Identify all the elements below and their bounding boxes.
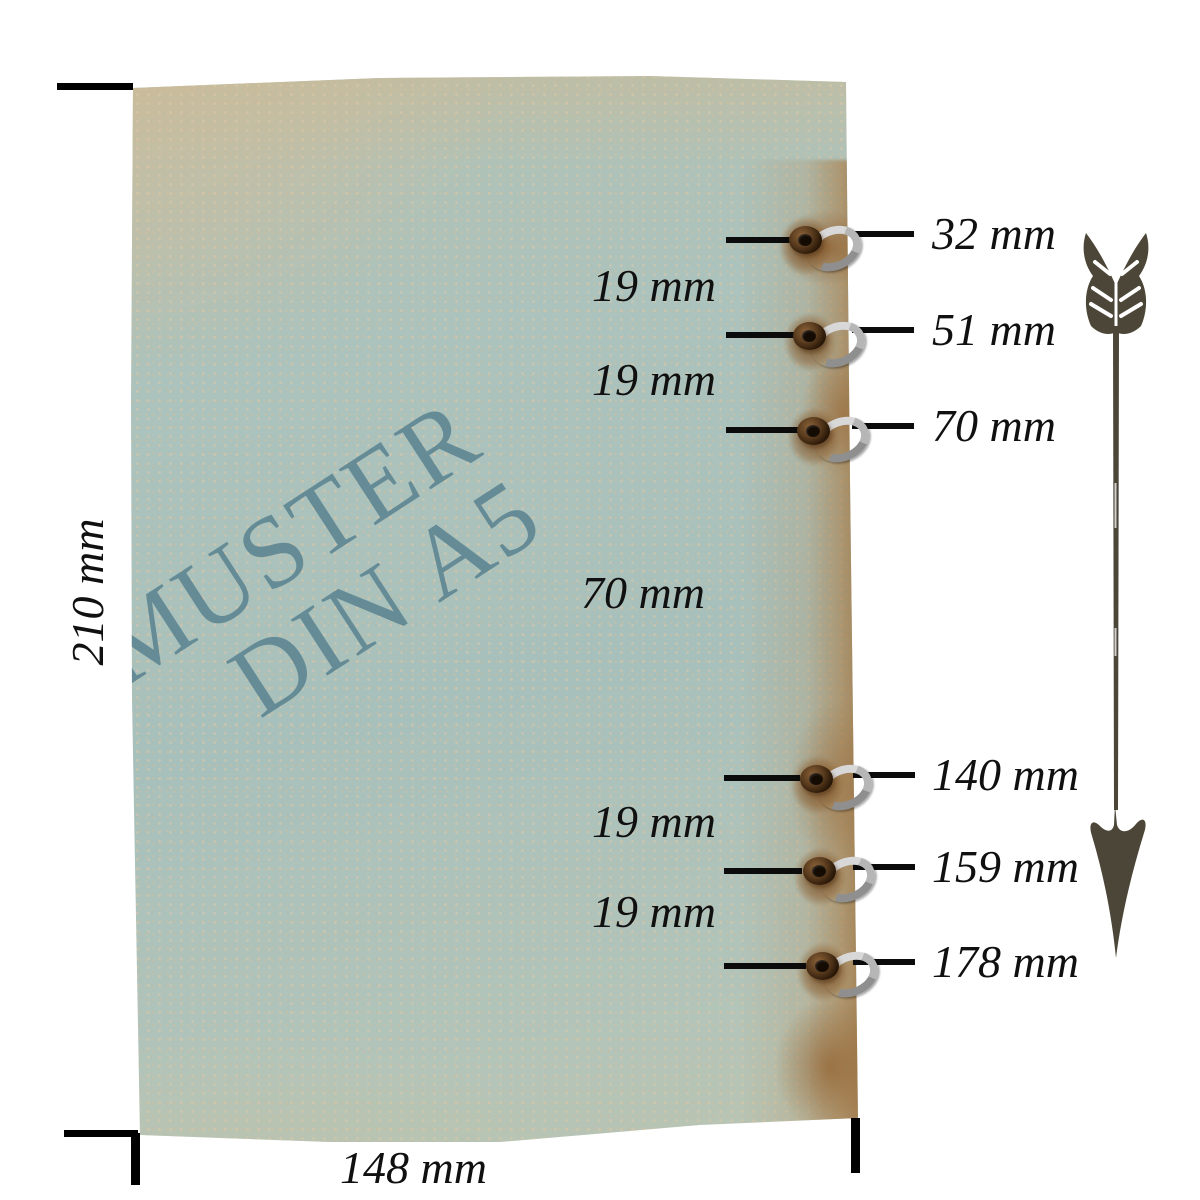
gap-label: 19 mm [592,884,716,940]
hole-distance-label: 140 mm [932,747,1079,803]
sheet-width-label: 148 mm [340,1140,487,1196]
grommet-icon [800,765,833,793]
gap-label: 19 mm [592,794,716,850]
grommet-icon [789,226,822,254]
measure-line-left [726,237,794,243]
measure-line-left [724,963,806,969]
hole-distance-label: 178 mm [932,934,1079,990]
grommet-icon [803,857,836,885]
hole-distance-label: 32 mm [932,206,1056,262]
tick-mark-bottom-left-vertical [131,1133,140,1185]
tick-mark-bottom-right [851,1118,860,1173]
grommet-icon [806,952,839,980]
hole-distance-label: 70 mm [932,398,1056,454]
measure-line-left [724,775,800,781]
gap-label: 70 mm [581,565,705,621]
measure-line-left [726,427,800,433]
measure-line-right [852,231,914,237]
tick-mark-bottom-left-horizontal [64,1130,138,1137]
arrow-down-icon [1070,228,1162,963]
grommet-icon [797,417,830,445]
hole-distance-label: 159 mm [932,839,1079,895]
sheet-height-label: 210 mm [60,482,110,702]
gap-label: 19 mm [592,352,716,408]
grommet-icon [793,322,826,350]
diagram-canvas: MUSTER DIN A5 32 mm 19 mm 51 mm 19 mm 70… [0,0,1200,1200]
gap-label: 19 mm [592,258,716,314]
measure-line-left [726,332,796,338]
measure-line-left [724,868,802,874]
hole-distance-label: 51 mm [932,302,1056,358]
tick-mark-top-left [57,83,133,90]
